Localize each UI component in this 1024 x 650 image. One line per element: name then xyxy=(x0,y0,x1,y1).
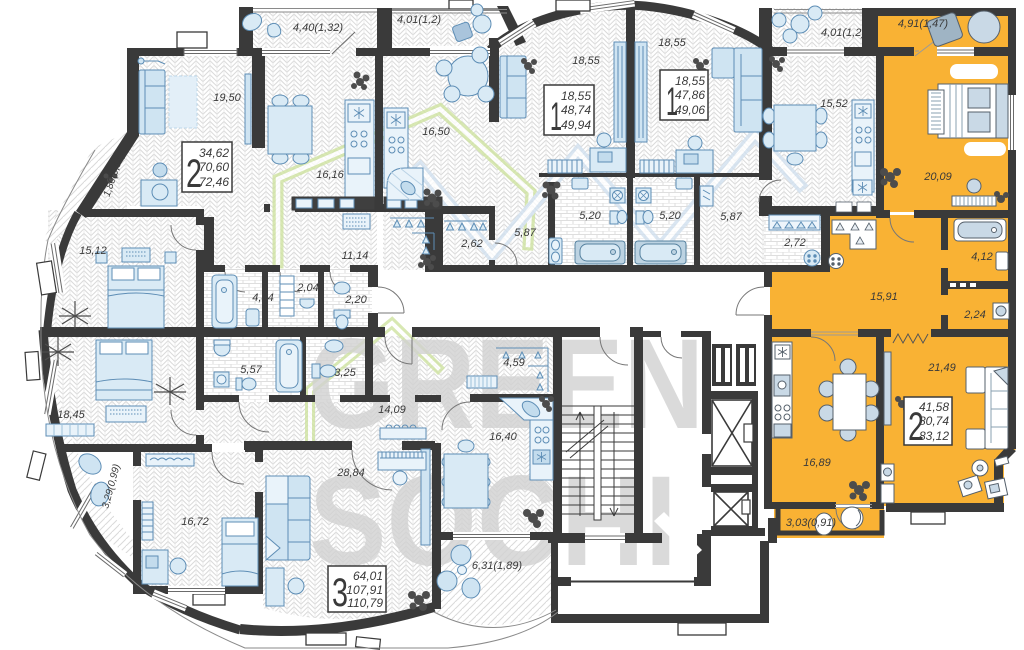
svg-text:34,62: 34,62 xyxy=(199,146,229,160)
svg-text:80,74: 80,74 xyxy=(919,414,949,428)
svg-text:3,25: 3,25 xyxy=(334,367,356,379)
svg-text:21,49: 21,49 xyxy=(927,362,956,374)
svg-text:4,01(1,2): 4,01(1,2) xyxy=(397,14,441,26)
svg-text:4,12: 4,12 xyxy=(971,251,992,263)
svg-text:20,09: 20,09 xyxy=(923,171,952,183)
svg-text:11,14: 11,14 xyxy=(342,250,369,262)
svg-text:14,09: 14,09 xyxy=(378,404,406,416)
svg-text:49,06: 49,06 xyxy=(675,103,705,117)
svg-text:5,20: 5,20 xyxy=(659,210,681,222)
svg-text:4,59: 4,59 xyxy=(503,357,524,369)
svg-text:4,40(1,32): 4,40(1,32) xyxy=(293,22,343,34)
svg-text:19,50: 19,50 xyxy=(213,92,241,104)
svg-text:4,44: 4,44 xyxy=(252,292,273,304)
svg-text:4,91(1,47): 4,91(1,47) xyxy=(898,18,948,30)
svg-text:28,84: 28,84 xyxy=(336,467,365,479)
svg-text:4,01(1,2): 4,01(1,2) xyxy=(821,27,865,39)
svg-text:15,91: 15,91 xyxy=(870,291,898,303)
svg-text:18,55: 18,55 xyxy=(675,74,705,88)
svg-text:18,55: 18,55 xyxy=(572,55,600,67)
svg-text:16,72: 16,72 xyxy=(181,516,209,528)
svg-text:83,12: 83,12 xyxy=(919,429,949,443)
svg-text:5,87: 5,87 xyxy=(514,227,536,239)
svg-text:5,57: 5,57 xyxy=(240,364,262,376)
svg-text:2,62: 2,62 xyxy=(460,238,482,250)
svg-text:6,31(1,89): 6,31(1,89) xyxy=(472,560,522,572)
svg-text:18,55: 18,55 xyxy=(658,37,686,49)
svg-text:18,55: 18,55 xyxy=(561,89,591,103)
svg-text:2,20: 2,20 xyxy=(344,294,367,306)
svg-text:64,01: 64,01 xyxy=(353,569,383,583)
svg-text:16,16: 16,16 xyxy=(316,169,344,181)
svg-text:70,60: 70,60 xyxy=(199,160,229,174)
svg-text:2,24: 2,24 xyxy=(963,309,985,321)
svg-text:49,94: 49,94 xyxy=(561,118,591,132)
svg-text:15,12: 15,12 xyxy=(79,245,107,257)
svg-text:107,91: 107,91 xyxy=(346,583,383,597)
svg-text:72,46: 72,46 xyxy=(199,175,229,189)
svg-text:5,87: 5,87 xyxy=(720,211,742,223)
svg-text:16,89: 16,89 xyxy=(803,457,831,469)
svg-text:18,45: 18,45 xyxy=(57,409,85,421)
svg-text:3,03(0,91): 3,03(0,91) xyxy=(786,517,836,529)
svg-text:41,58: 41,58 xyxy=(919,400,949,414)
svg-text:16,50: 16,50 xyxy=(422,126,450,138)
svg-text:2,04: 2,04 xyxy=(296,282,318,294)
svg-text:15,52: 15,52 xyxy=(820,98,848,110)
svg-text:47,86: 47,86 xyxy=(675,88,705,102)
svg-text:110,79: 110,79 xyxy=(347,596,383,610)
svg-text:48,74: 48,74 xyxy=(561,103,591,117)
svg-text:2,72: 2,72 xyxy=(783,237,805,249)
svg-text:5,20: 5,20 xyxy=(579,210,601,222)
svg-text:16,40: 16,40 xyxy=(489,431,517,443)
